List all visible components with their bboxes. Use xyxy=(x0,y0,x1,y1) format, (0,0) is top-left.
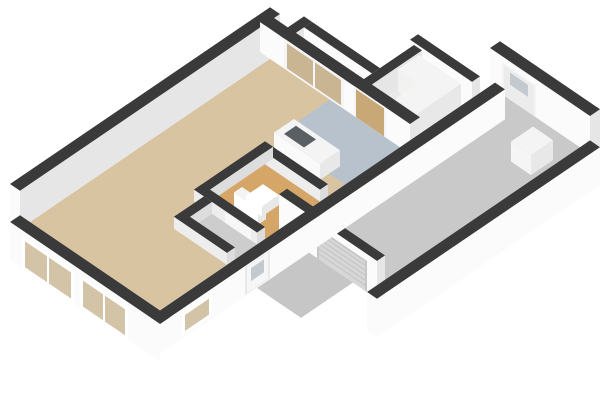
wall-end-cap xyxy=(367,292,377,337)
floor-plan-3d xyxy=(0,0,600,400)
floor-plan-stage xyxy=(0,0,600,400)
window-mullion xyxy=(103,294,105,321)
window-mullion xyxy=(47,256,49,283)
